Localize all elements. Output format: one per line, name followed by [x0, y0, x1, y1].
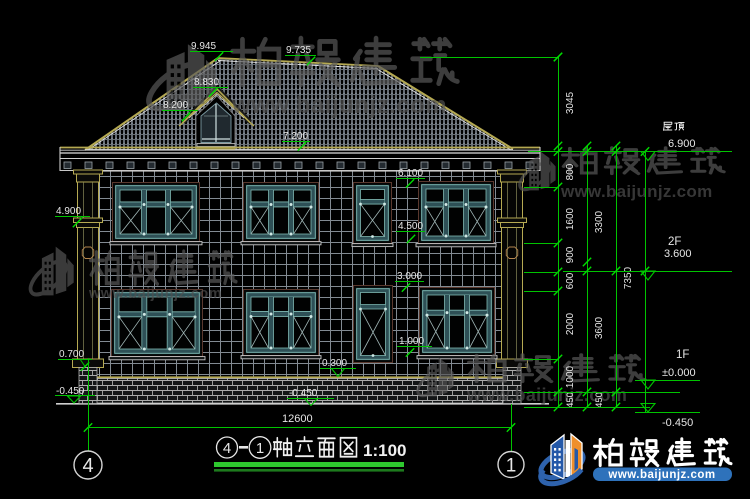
svg-text:3600: 3600 — [594, 316, 605, 339]
svg-text:4.500: 4.500 — [398, 221, 423, 232]
svg-text:1000: 1000 — [565, 365, 576, 388]
svg-text:3045: 3045 — [565, 91, 576, 114]
svg-text:3300: 3300 — [594, 210, 605, 233]
svg-text:12600: 12600 — [282, 413, 313, 425]
svg-text:8.830: 8.830 — [194, 77, 219, 88]
svg-text:6.900: 6.900 — [668, 138, 696, 150]
svg-text:-0.450: -0.450 — [289, 388, 318, 399]
svg-text:0.700: 0.700 — [59, 349, 84, 360]
svg-text:800: 800 — [565, 163, 576, 180]
svg-text:1600: 1600 — [565, 207, 576, 230]
svg-text:6.100: 6.100 — [398, 168, 423, 179]
svg-text:900: 900 — [565, 246, 576, 263]
svg-text:3.000: 3.000 — [397, 271, 422, 282]
svg-text:7.200: 7.200 — [283, 131, 308, 142]
svg-text:600: 600 — [565, 272, 576, 289]
svg-text:4.900: 4.900 — [56, 206, 81, 217]
svg-text:7350: 7350 — [623, 266, 634, 289]
svg-text:±0.000: ±0.000 — [662, 367, 696, 379]
svg-text:450: 450 — [565, 392, 576, 408]
svg-text:1F: 1F — [676, 349, 689, 361]
svg-text:www.baijunjz.com: www.baijunjz.com — [607, 469, 715, 481]
svg-text:1:100: 1:100 — [363, 441, 406, 460]
svg-text:-0.450: -0.450 — [662, 417, 693, 429]
svg-text:www.baijunjz.com: www.baijunjz.com — [560, 182, 713, 201]
svg-text:1.000: 1.000 — [399, 336, 424, 347]
svg-text:4: 4 — [223, 440, 231, 457]
svg-text:1: 1 — [506, 456, 517, 477]
svg-text:2000: 2000 — [565, 312, 576, 335]
svg-text:2F: 2F — [668, 236, 681, 248]
svg-text:1: 1 — [256, 440, 264, 457]
svg-text:www.baijunjz.com: www.baijunjz.com — [88, 286, 222, 302]
svg-text:9.735: 9.735 — [286, 45, 311, 56]
svg-text:8.200: 8.200 — [163, 100, 188, 111]
svg-text:450: 450 — [594, 392, 605, 408]
svg-text:9.945: 9.945 — [191, 41, 216, 52]
svg-text:4: 4 — [82, 455, 93, 477]
svg-text:www.baijunjz.com: www.baijunjz.com — [231, 92, 447, 119]
svg-text:3.600: 3.600 — [664, 248, 692, 260]
svg-text:0.300: 0.300 — [322, 358, 347, 369]
